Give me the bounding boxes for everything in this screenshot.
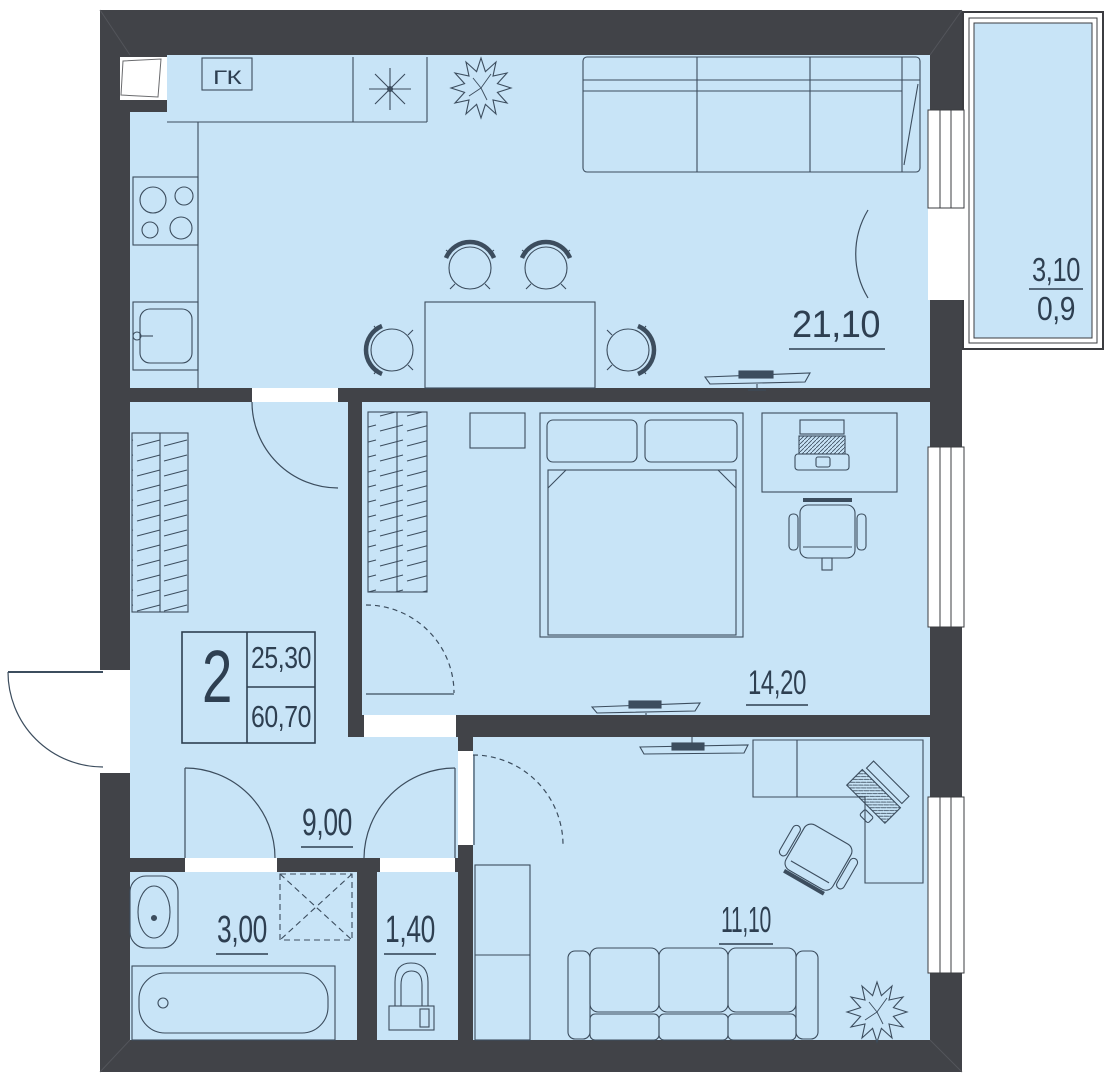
wall-hall-bedroom (348, 402, 362, 715)
living-hall-opening (252, 388, 338, 402)
wall-top (100, 10, 962, 55)
wardrobe-bedroom-icon (368, 412, 427, 592)
room-door-opening (458, 751, 473, 845)
bathroom-door-opening (185, 858, 277, 872)
entrance-opening (100, 670, 130, 773)
furniture-hallway (132, 433, 188, 612)
window-room (928, 797, 964, 973)
floor-plan-page: 21,10 14,20 11,10 9,00 3,00 1,40 3,10 0,… (0, 0, 1111, 1080)
hallway-area-label: 9,00 (302, 802, 352, 844)
balcony-area-label: 3,10 0,9 (1029, 251, 1083, 327)
window-bedroom (928, 447, 964, 627)
living-area-label: 21,10 (792, 304, 880, 346)
wall-bath-wc (357, 872, 377, 1040)
balcony-area-reduced: 0,9 (1037, 290, 1075, 327)
wall-living-divider (130, 388, 930, 402)
room2-area-label: 11,10 (721, 899, 771, 940)
closet-label: ГК (213, 68, 242, 89)
wall-left (100, 10, 130, 1072)
balcony-door-opening (928, 208, 964, 300)
stamp-rooms-count: 2 (202, 635, 232, 718)
wc-door-opening (380, 858, 455, 872)
wc-area-label: 1,40 (385, 909, 435, 951)
floor-plan-canvas: 21,10 14,20 11,10 9,00 3,00 1,40 3,10 0,… (0, 0, 1111, 1080)
stamp-total-area: 60,70 (251, 699, 311, 734)
bedroom-door-opening (364, 715, 456, 737)
vent-shaft (120, 57, 167, 100)
balcony (963, 12, 1103, 349)
burner-symbol-icon (369, 68, 411, 110)
stamp-living-area: 25,30 (251, 640, 311, 675)
wall-bottom (100, 1040, 962, 1072)
wardrobe-hallway-icon (132, 433, 188, 612)
bathroom-area-label: 3,00 (217, 909, 267, 951)
bedroom-area-label: 14,20 (748, 664, 806, 702)
balcony-area-full: 3,10 (1032, 251, 1080, 288)
window-living (928, 110, 964, 208)
